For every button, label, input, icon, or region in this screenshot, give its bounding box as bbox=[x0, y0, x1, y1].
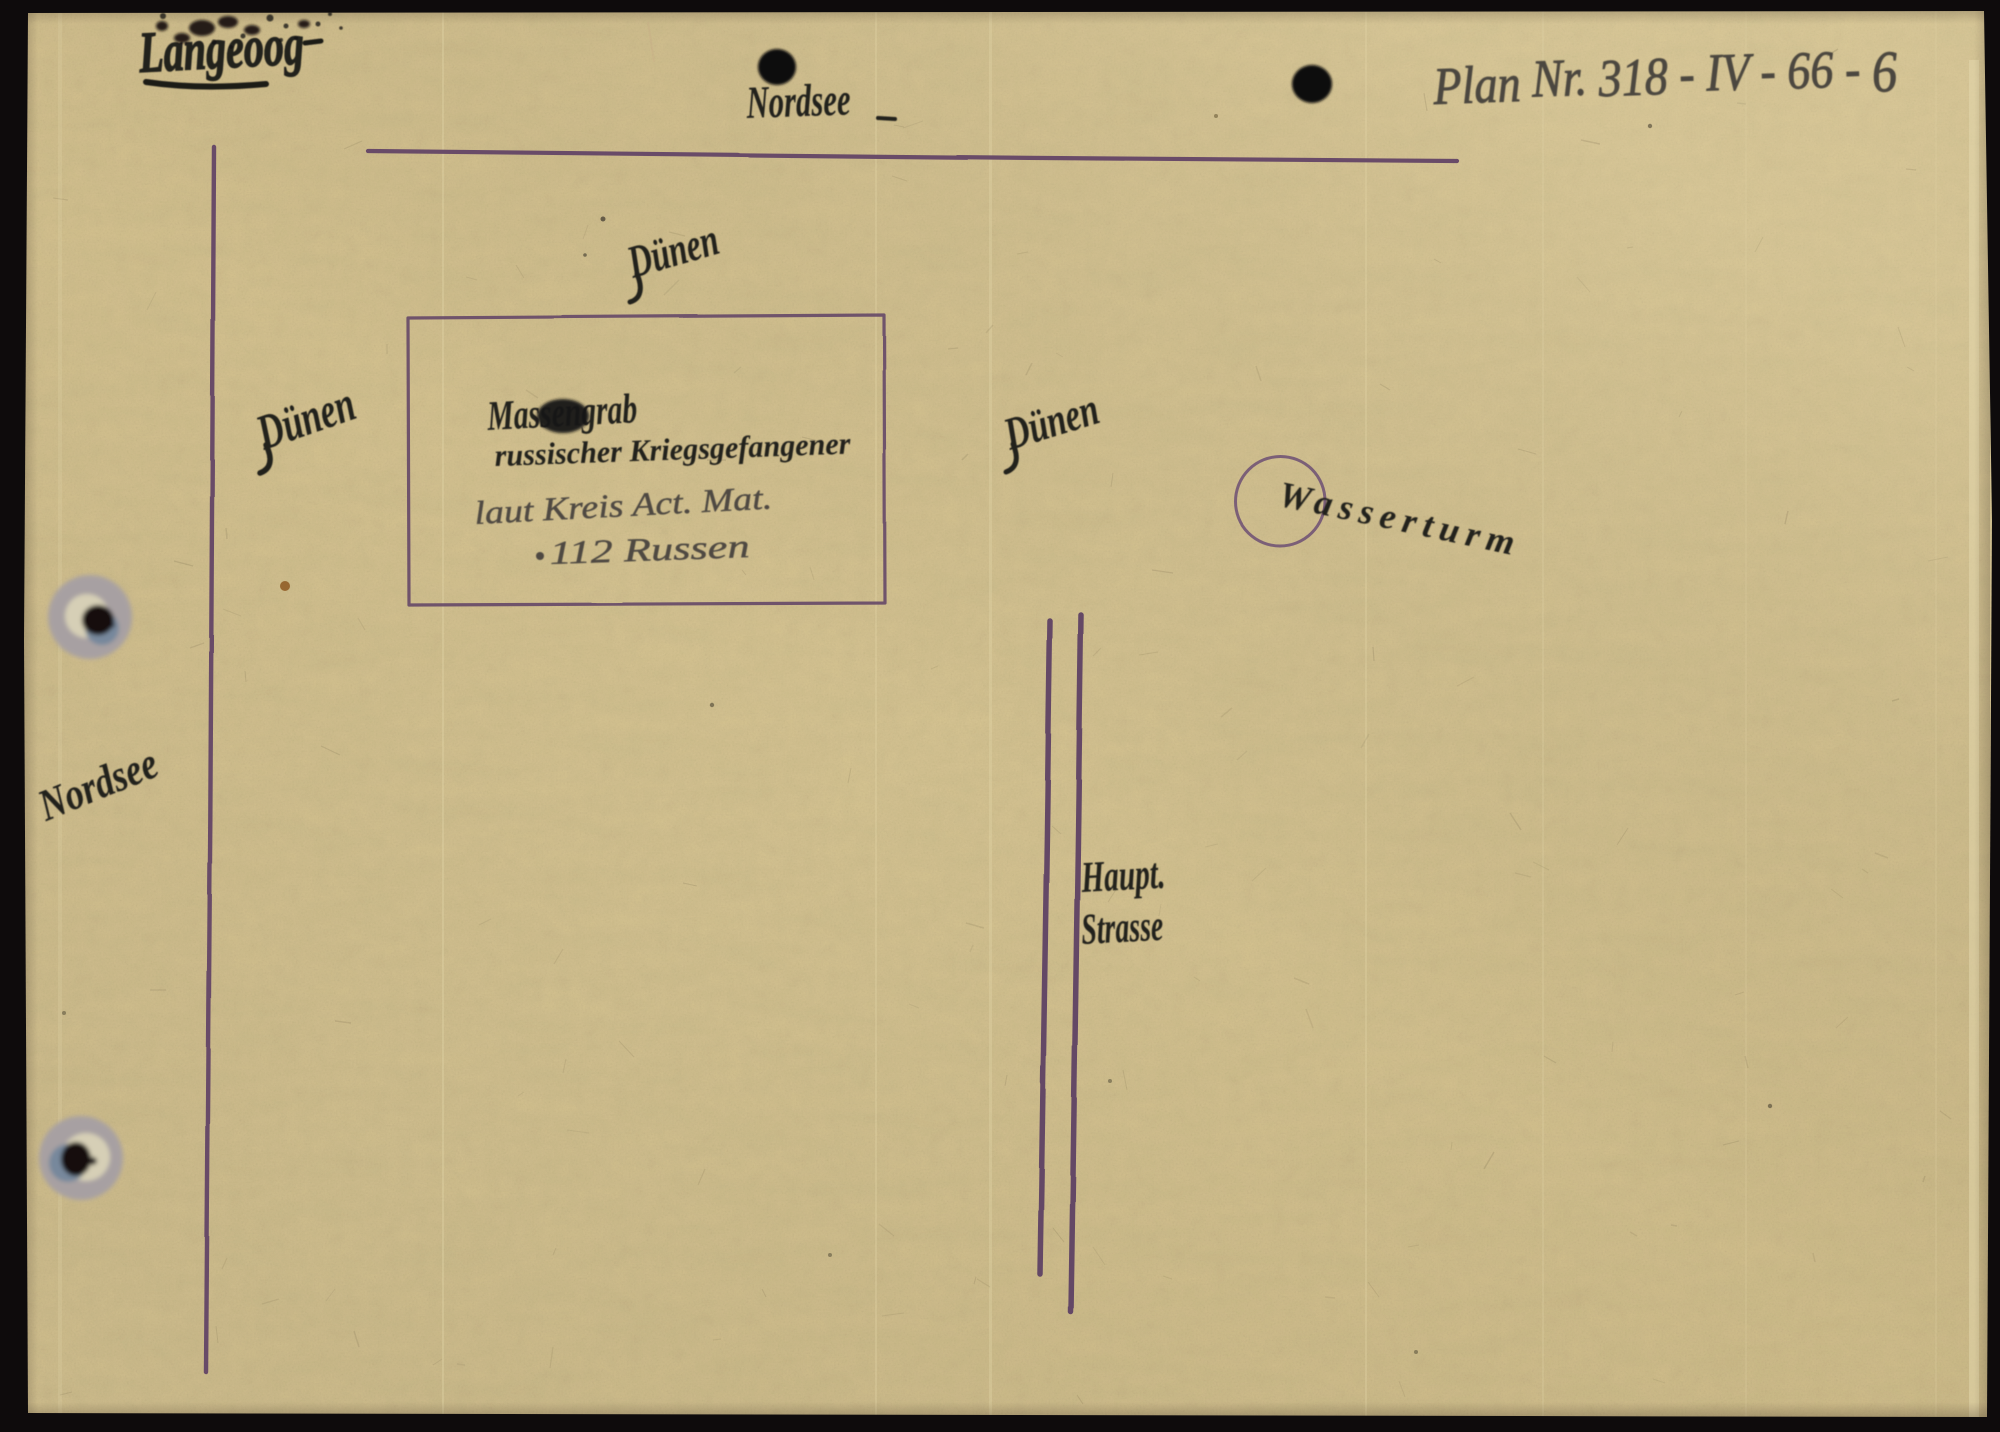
svg-text:Haupt.: Haupt. bbox=[1079, 849, 1166, 902]
svg-text:Nordsee: Nordsee bbox=[745, 73, 851, 128]
svg-text:112 Russen: 112 Russen bbox=[549, 529, 750, 572]
svg-text:Strasse: Strasse bbox=[1080, 901, 1164, 954]
